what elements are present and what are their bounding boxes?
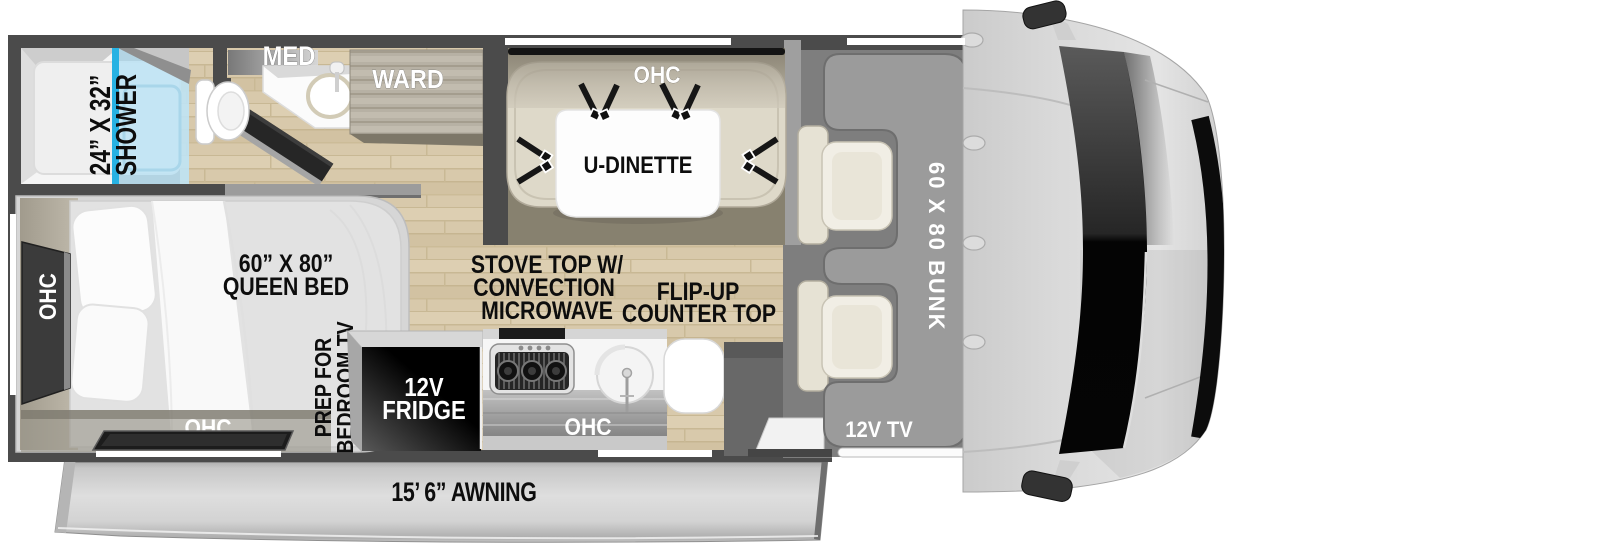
svg-text:SHOWER: SHOWER (109, 74, 142, 176)
svg-text:FRIDGE: FRIDGE (382, 396, 465, 425)
svg-text:MICROWAVE: MICROWAVE (481, 296, 613, 324)
svg-text:60 X 80 BUNK: 60 X 80 BUNK (924, 162, 949, 332)
svg-text:COUNTER TOP: COUNTER TOP (622, 299, 776, 327)
svg-text:QUEEN BED: QUEEN BED (223, 272, 349, 300)
svg-text:OHC: OHC (35, 273, 62, 320)
svg-text:U-DINETTE: U-DINETTE (584, 151, 693, 178)
svg-text:WARD: WARD (372, 66, 443, 94)
svg-text:15’ 6” AWNING: 15’ 6” AWNING (391, 478, 536, 508)
svg-text:OHC: OHC (565, 414, 612, 441)
svg-text:12V TV: 12V TV (845, 418, 912, 442)
svg-text:OHC: OHC (634, 62, 681, 89)
